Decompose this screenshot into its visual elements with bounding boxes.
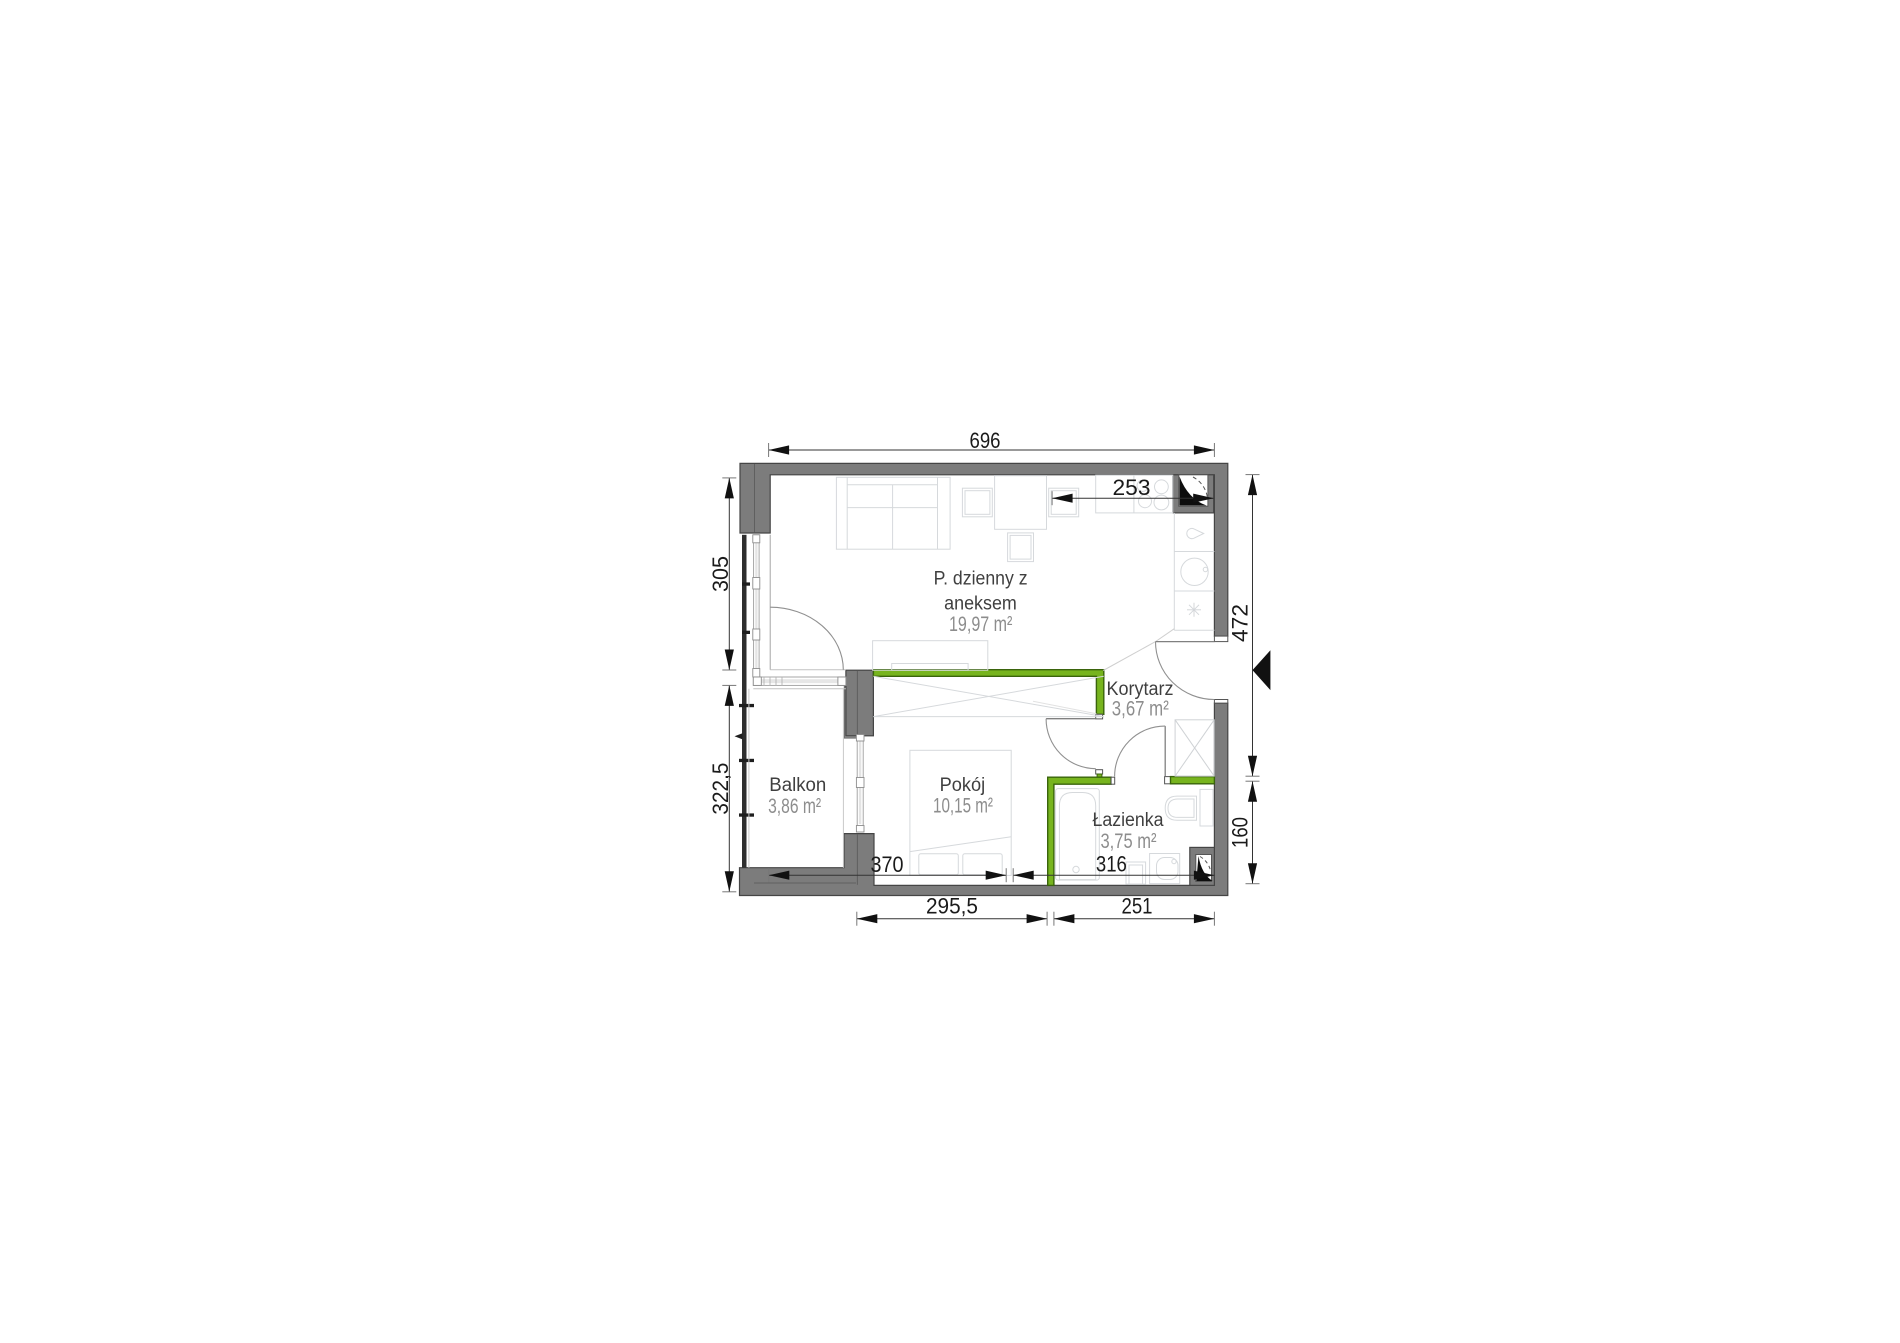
svg-text:P. dzienny z: P. dzienny z xyxy=(934,569,1028,590)
svg-text:160: 160 xyxy=(1228,817,1253,848)
svg-text:3,75 m²: 3,75 m² xyxy=(1101,830,1157,853)
svg-text:696: 696 xyxy=(970,428,1001,453)
svg-text:322,5: 322,5 xyxy=(708,763,733,815)
svg-text:Balkon: Balkon xyxy=(769,775,826,796)
svg-text:3,86 m²: 3,86 m² xyxy=(768,795,821,818)
svg-text:3,67 m²: 3,67 m² xyxy=(1112,698,1169,721)
svg-text:Pokój: Pokój xyxy=(940,775,986,796)
svg-text:305: 305 xyxy=(708,556,733,592)
svg-text:253: 253 xyxy=(1113,475,1151,500)
svg-text:19,97 m²: 19,97 m² xyxy=(949,613,1012,636)
svg-text:316: 316 xyxy=(1096,852,1127,877)
svg-text:370: 370 xyxy=(871,852,904,877)
svg-text:472: 472 xyxy=(1228,604,1253,642)
svg-text:251: 251 xyxy=(1122,894,1153,919)
svg-text:10,15 m²: 10,15 m² xyxy=(933,795,993,818)
svg-text:Łazienka: Łazienka xyxy=(1093,810,1164,831)
svg-text:aneksem: aneksem xyxy=(944,593,1017,614)
svg-text:295,5: 295,5 xyxy=(926,894,978,919)
